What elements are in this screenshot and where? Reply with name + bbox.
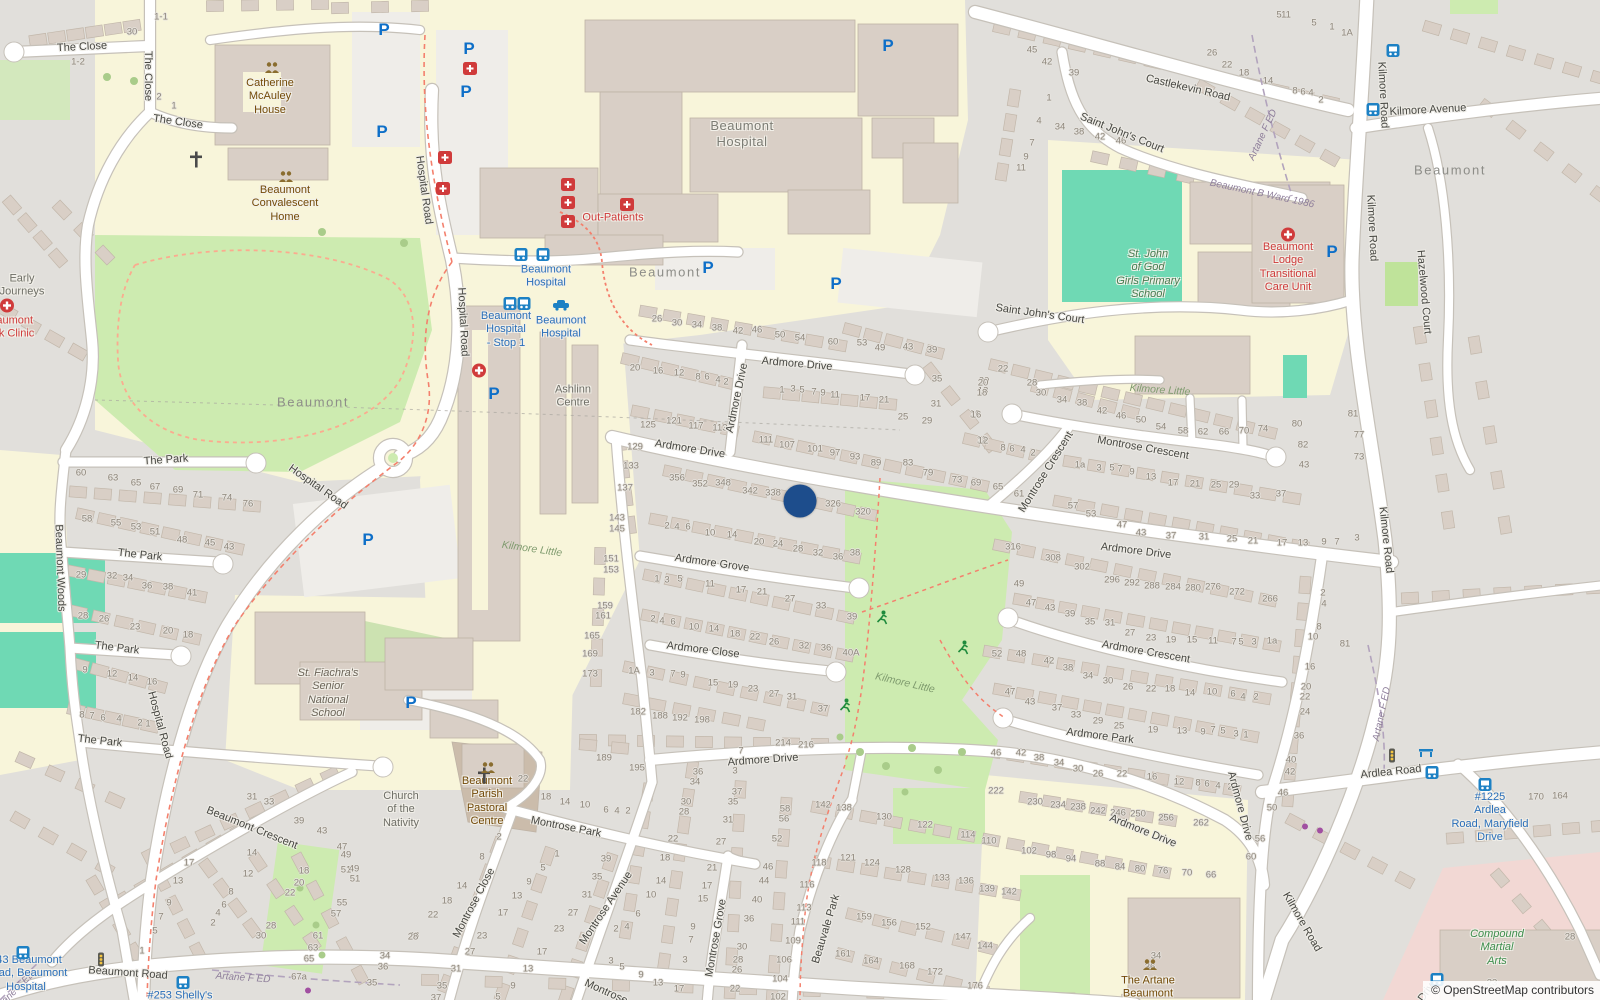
house-number: 8 [1316,622,1321,633]
house-number: 31 [787,692,798,703]
house-number: 47 [1005,687,1016,698]
house-number: 38 [1074,127,1085,138]
house-number: 17 [537,947,548,958]
hospital-icon [620,198,634,216]
street-label: Montrose Close [451,866,498,940]
house-number: 5 [1276,10,1281,21]
house-number: 28 [679,807,690,818]
place-label-early-journeys: EarlyJourneys [0,273,44,300]
house-number: 14 [560,797,571,808]
house-number: 19 [1166,635,1177,646]
house-number: 9 [1129,467,1134,478]
house-number: 6 [1300,87,1305,98]
house-number: 45 [205,538,216,549]
house-number: 1a [1267,636,1278,647]
house-number: 14 [656,876,667,887]
place-label-beaumont-hospital-stop-1: BeaumontHospital- Stop 1 [481,310,531,350]
house-number: 46 [763,862,774,873]
house-number: 9 [690,922,695,933]
place-label-st-john-of-god-school: St. Johnof GodGirls PrimarySchool [1116,248,1180,302]
house-number: 14 [128,673,139,684]
house-number: 37 [732,787,743,798]
house-number: 1 [145,719,150,730]
house-number: 7 [688,935,693,946]
house-number: 12 [1174,777,1185,788]
house-number: 97 [830,448,841,459]
hospital-icon [463,62,477,80]
house-number: 46 [752,325,763,336]
house-number: 58 [780,804,791,815]
house-number: 35 [1085,617,1096,628]
street-label: Kilmore Road [1280,890,1324,954]
bus-icon [515,248,528,266]
house-number: 39 [1065,609,1076,620]
house-number: 22 [668,834,679,845]
house-number: 14 [1263,76,1274,87]
house-number: 266 [1262,594,1278,605]
house-number: 36 [833,552,844,563]
house-number: 3 [649,668,654,679]
house-number: 5 [540,863,545,874]
house-number: 2 [1318,95,1323,106]
house-number: 21 [1248,536,1259,547]
house-number: 5 [799,385,804,396]
house-number: 102 [770,992,786,1000]
house-number: 67 [150,482,161,493]
house-number: 151 [603,554,619,565]
house-number: 4 [116,714,121,725]
house-number: 256 [1158,813,1174,824]
house-number: 7 [89,711,94,722]
house-number: 3 [682,955,687,966]
house-number: 47 [1117,520,1128,531]
boundary-label: Artane F ED [215,971,270,986]
house-number: 7 [158,912,163,923]
house-number: 133 [623,461,639,472]
house-number: 356 [669,473,685,484]
house-number: 110 [981,836,996,847]
house-number: 2 [210,918,215,929]
house-number: 7 [1029,138,1034,149]
house-number: 2 [613,924,618,935]
map-viewport[interactable]: 301-11-221454239262218148642147911511511… [0,0,1600,1000]
house-number: 308 [1045,553,1061,564]
house-number: 49 [349,864,360,875]
house-number: 6 [221,900,226,911]
house-number: 13 [1298,538,1309,549]
house-number: 5 [677,574,682,585]
place-label-st-fiachras-school: St. Fiachra'sSeniorNationalSchool [298,667,359,721]
house-number: 48 [1016,649,1027,660]
house-number: 38 [163,582,174,593]
house-number: 15 [708,678,719,689]
house-number: 3 [664,575,669,586]
place-label-stop-43-beaumont-road: #43 BeaumontRoad, BeaumontHospital [0,954,67,994]
house-number: 172 [927,967,943,978]
house-number: 20 [754,537,765,548]
house-number: 116 [799,880,814,891]
house-number: 53 [857,338,868,349]
house-number: 73 [952,475,963,486]
house-number: 82 [1298,440,1309,451]
house-number: 15 [1187,635,1198,646]
house-number: 14 [247,848,258,859]
house-number: 338 [765,488,781,499]
medic-circle-icon [1281,227,1296,247]
house-number: 17 [498,908,509,919]
house-number: 22 [730,984,741,995]
house-number: 50 [1267,803,1278,814]
house-number: 20 [630,363,641,374]
house-number: 6 [1204,779,1209,790]
house-number: 18 [977,388,988,399]
house-number: 11 [830,390,840,401]
location-marker[interactable] [784,485,817,518]
house-number: 21 [707,863,718,874]
house-number: 35 [437,981,448,992]
house-number: 142 [815,800,831,811]
house-number: 1 [1329,22,1334,33]
house-number: 65 [131,478,142,489]
house-number: 30 [1036,388,1047,399]
house-number: 36 [1145,962,1156,973]
house-number: 188 [652,711,668,722]
house-number: 42 [1097,406,1108,417]
house-number: 9 [820,388,825,399]
house-number: 37 [818,704,829,715]
house-number: 6 [704,372,709,383]
house-number: 35 [592,872,603,883]
locality-label: Beaumont [629,265,701,280]
street-label: Montrose Crescent [1096,434,1190,462]
house-number: 30 [256,931,267,942]
house-number: 129 [627,442,643,453]
house-number: 47 [337,842,348,853]
house-number: 18 [541,792,552,803]
house-number: 3 [1096,463,1101,474]
bus-icon [537,248,550,266]
house-number: 128 [895,865,911,876]
house-number: 34 [1083,671,1094,682]
house-number: 2 [1320,588,1325,599]
house-number: 137 [617,483,633,494]
house-number: 42 [733,326,744,337]
house-number: 1 [1046,93,1051,104]
dot-icon [1302,817,1309,835]
bus-icon [1426,766,1439,784]
house-number: 29 [76,570,87,581]
house-number: 9 [680,670,685,681]
house-number: 16 [653,366,664,377]
house-number: 13 [653,978,664,989]
boundary-label: Art­ane F ED [0,969,37,1000]
house-number: 18 [299,866,310,877]
house-number: 38 [1063,663,1074,674]
house-number: 2 [156,92,161,103]
house-number: 272 [1229,587,1245,598]
parking-icon: P [463,39,474,59]
house-number: 26 [99,614,110,625]
house-number: 42 [1016,748,1027,759]
house-number: 326 [825,499,841,510]
house-number: 5 [495,992,500,1000]
house-number: 23 [477,931,488,942]
house-number: 4 [1321,599,1326,610]
house-number: 70 [1239,426,1250,437]
house-number: 38 [1077,398,1088,409]
house-number: 111 [791,917,805,928]
house-number: 159 [856,912,872,923]
house-number: 1 [171,101,176,112]
house-number: 7 [670,669,675,680]
house-number: 57 [331,909,342,920]
street-label: Montrose Park [530,814,603,839]
house-number: 33 [816,601,827,612]
house-number: 22 [1222,60,1233,71]
house-number: 55 [337,898,348,909]
house-number: 18 [1165,684,1176,695]
house-number: 10 [1207,687,1218,698]
house-number: 8 [79,710,84,721]
house-number: 164 [863,956,879,967]
street-label: Ardmore Drive [1100,541,1172,562]
street-label: Ardmore Grove [674,552,750,574]
house-number: 22 [285,888,296,899]
house-number: 114 [960,830,975,841]
street-label: Beaumont Crescent [205,804,300,852]
bus-icon [177,976,190,994]
house-number: 9 [638,970,643,981]
cross-icon [190,152,202,173]
house-number: 55 [111,518,122,529]
house-number: 138 [836,803,852,814]
house-number: 2 [1030,448,1035,459]
house-number: 139 [979,884,995,895]
house-number: 6 [1009,444,1014,455]
house-number: 1-1 [154,12,168,23]
house-number: 8 [1000,443,1005,454]
house-number: 43 [1045,603,1056,614]
locality-label: Beaumont [277,395,349,410]
house-number: 9 [166,898,171,909]
house-number: 22 [518,774,529,785]
house-number: 11 [1281,10,1291,21]
house-number: 22 [1117,769,1128,780]
house-number: 60 [828,337,839,348]
house-number: 12 [243,869,254,880]
house-number: 25 [1227,534,1238,545]
house-number: 234 [1050,800,1066,811]
place-label-stop-253-shellys: #253 Shelly's [147,989,212,1000]
house-number: 31 [451,964,462,975]
house-number: 40 [1286,755,1297,766]
house-number: 63 [108,473,119,484]
place-label-ashlinn-centre: AshlinnCentre [555,384,591,411]
house-number: 20 [294,878,305,889]
house-number: 26 [652,314,663,325]
house-number: 47 [1026,598,1037,609]
house-number: 58 [82,514,93,525]
house-number: 18 [660,853,671,864]
house-number: 43 [1136,528,1147,539]
house-number: 42 [1044,656,1055,667]
house-number: 18 [442,896,453,907]
boundary-label: Beaumont B Ward 1986 [1209,178,1316,211]
house-number: 16 [971,410,982,421]
house-number: 27 [1125,628,1136,639]
house-number: 13 [512,891,523,902]
parking-icon: P [488,384,499,404]
house-number: 89 [871,458,882,469]
house-number: 39 [294,816,305,827]
house-number: 216 [798,740,814,751]
hospital-icon [561,215,575,233]
street-label: The Close [57,40,108,55]
house-number: 76 [243,499,254,510]
house-number: 28 [1565,932,1576,943]
house-number: 80 [1292,419,1303,430]
house-number: 35 [367,978,378,989]
parking-icon: P [882,36,893,56]
house-number: 8 [1195,778,1200,789]
house-number: 28 [409,931,420,942]
house-number: 40 [752,895,763,906]
street-label: The Park [94,639,140,656]
house-number: 17 [736,585,747,596]
house-number: 94 [1066,854,1077,865]
house-number: 117 [688,421,703,432]
place-label-beaumont-convalescent-home: BeaumontConvalescentHome [252,184,319,224]
house-number: 5 [619,962,624,973]
house-number: 18 [183,630,194,641]
house-number: 4 [1036,116,1041,127]
bench-icon [1419,744,1433,762]
house-number: 36 [821,643,832,654]
house-number: 19 [728,680,739,691]
house-number: 49 [341,850,352,861]
house-number: 43 [1299,460,1310,471]
house-number: 54 [1156,422,1167,433]
house-number: 161 [595,611,611,622]
house-number: 2 [137,718,142,729]
street-label: Montrose [583,977,630,1000]
house-number: 18 [730,629,741,640]
house-number: 46 [1116,411,1127,422]
house-number: 17 [184,858,195,869]
house-number: 51 [350,874,361,885]
house-number: 34 [1054,758,1065,769]
house-number: 53 [131,522,142,533]
house-number: 1-2 [71,57,85,68]
house-number: 3 [1233,729,1238,740]
house-number: 8 [1292,86,1297,97]
house-number: 61 [313,931,324,942]
house-number: 2 [1253,692,1258,703]
house-number: 1A [628,666,640,677]
house-number: 25 [898,412,909,423]
house-number: 2 [625,806,630,817]
parking-icon: P [1326,242,1337,262]
house-number: 88 [1095,859,1106,870]
attribution[interactable]: © OpenStreetMap contributors [1423,981,1600,1000]
house-number: 66 [1206,870,1217,881]
house-number: 143 [609,513,625,524]
house-number: 23 [554,924,565,935]
house-number: 20 [978,378,989,389]
house-number: 65 [304,954,315,965]
house-number: 13 [523,964,534,975]
house-number: 50 [1136,415,1147,426]
house-number: 348 [715,478,731,489]
people-icon [1142,957,1158,975]
house-number: 83 [903,458,914,469]
house-number: 38 [712,323,723,334]
house-number: 54 [795,333,806,344]
street-label: Ardmore Drive [1108,812,1178,850]
house-number: 165 [584,631,600,642]
street-label: Saint John's Court [995,302,1085,326]
house-number: 69 [971,478,982,489]
house-number: 6 [685,522,690,533]
house-number: 53 [1086,509,1097,520]
house-number: 4 [1240,692,1245,703]
house-number: 3 [1251,637,1256,648]
house-number: 77 [1354,430,1365,441]
place-label-beaumont-lodge: BeaumontLodgeTransitionalCare Unit [1260,241,1316,295]
house-number: 1A [1341,28,1353,39]
house-number: 6 [100,713,105,724]
house-number: 37 [1052,703,1063,714]
house-number: 80 [1135,864,1146,875]
hospital-icon [438,151,452,169]
house-number: 40A [843,648,860,659]
attribution-text[interactable]: © OpenStreetMap contributors [1431,983,1594,997]
house-number: 4 [624,922,629,933]
house-number: 152 [915,922,931,933]
house-number: 214 [775,738,791,749]
house-number: 6 [635,909,640,920]
house-number: 31 [1105,618,1116,629]
house-number: 61 [1014,489,1025,500]
house-number: 36 [744,914,755,925]
house-number: 33 [1071,710,1082,721]
street-label: Montrose Avenue [577,869,635,947]
hospital-icon [561,196,575,214]
house-number: 22 [428,910,439,921]
house-number: 7 [1210,725,1215,736]
house-number: 113 [712,423,727,434]
house-number: 57 [1068,501,1079,512]
house-number: 11 [1016,163,1026,174]
place-label-the-artane-beaumont: The ArtaneBeaumont [1121,975,1175,1000]
house-number: 296 [1104,575,1120,586]
place-label-out-patients: Out-Patients [582,211,643,224]
house-number: 42 [1285,767,1296,778]
street-label: Castlekevin Road [1145,72,1232,103]
signal-icon [1389,749,1395,768]
house-number: 28 [733,955,744,966]
house-number: 5 [1238,637,1243,648]
house-number: 161 [835,949,851,960]
house-number: 16 [147,677,158,688]
house-number: 156 [881,918,897,929]
house-number: 84 [1115,862,1126,873]
house-number: 4 [1308,88,1313,99]
place-label-compound-martial-arts: CompoundMartialArts [1470,928,1524,968]
house-number: 176 [967,981,983,992]
house-number: 8 [695,372,700,383]
house-number: 320 [855,507,871,518]
